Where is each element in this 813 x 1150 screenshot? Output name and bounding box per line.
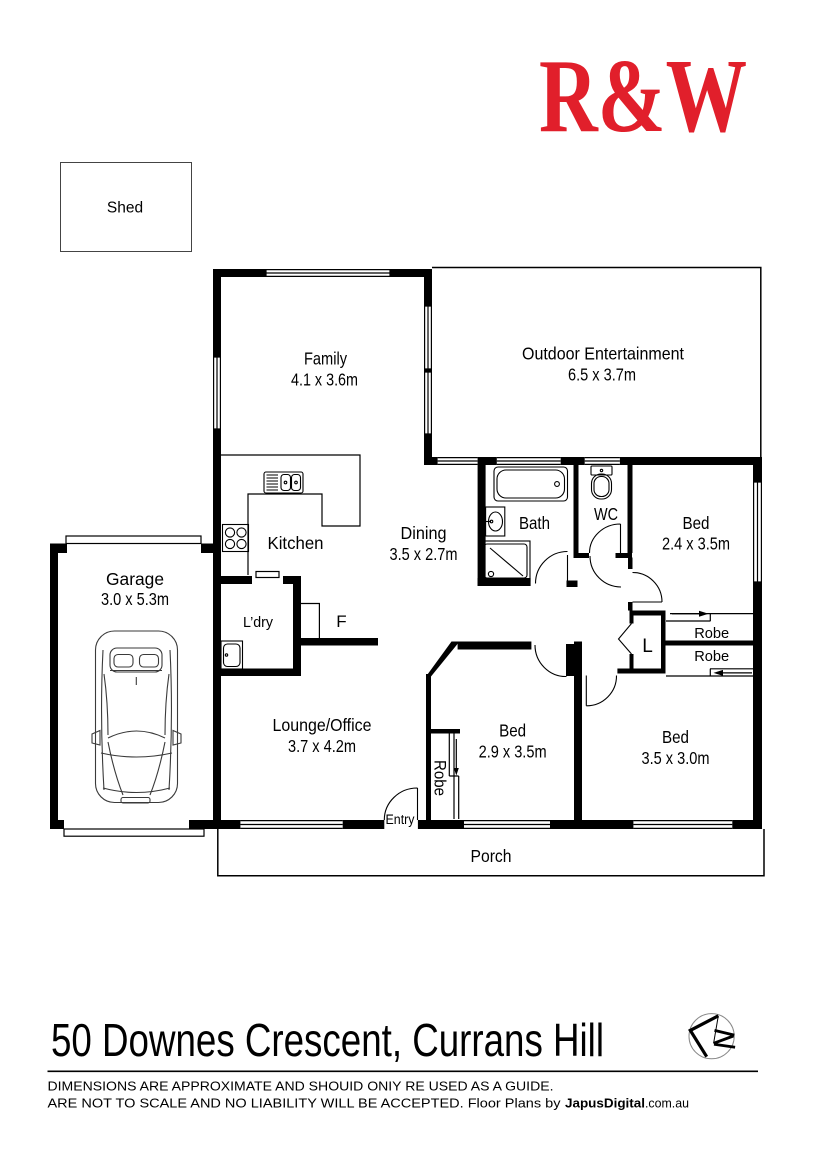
svg-text:DIMENSIONS ARE APPROXIMATE AND: DIMENSIONS ARE APPROXIMATE AND SHOUID ON… [48,1079,554,1094]
svg-text:F: F [336,612,346,631]
svg-text:3.5 x 3.0m: 3.5 x 3.0m [642,748,710,768]
svg-text:3.5 x 2.7m: 3.5 x 2.7m [390,544,458,564]
svg-text:Garage: Garage [106,569,164,589]
svg-text:Lounge/Office: Lounge/Office [273,715,372,735]
svg-text:Shed: Shed [107,200,143,217]
svg-text:L’dry: L’dry [243,614,273,631]
svg-text:Family: Family [304,349,347,369]
svg-text:4.1 x 3.6m: 4.1 x 3.6m [291,370,358,390]
svg-text:Robe: Robe [431,760,449,796]
svg-text:50 Downes Crescent, Currans Hi: 50 Downes Crescent, Currans Hill [51,1014,604,1066]
svg-text:Outdoor Entertainment: Outdoor Entertainment [522,344,684,364]
svg-text:2.9 x 3.5m: 2.9 x 3.5m [479,742,547,762]
svg-text:R&W: R&W [539,37,747,154]
svg-text:Bath: Bath [519,513,550,533]
svg-text:Bed: Bed [683,513,710,533]
svg-text:.com.au: .com.au [645,1095,689,1110]
svg-text:Dining: Dining [401,523,447,543]
svg-text:3.0 x 5.3m: 3.0 x 5.3m [101,589,169,609]
svg-text:Bed: Bed [662,727,689,747]
svg-text:L: L [642,636,653,657]
svg-text:6.5 x 3.7m: 6.5 x 3.7m [568,365,636,385]
svg-text:ARE NOT TO SCALE AND NO LIABIL: ARE NOT TO SCALE AND NO LIABILITY WILL B… [48,1095,565,1110]
svg-text:Porch: Porch [471,846,512,866]
svg-text:Robe: Robe [694,648,729,665]
svg-text:Kitchen: Kitchen [268,533,324,553]
svg-text:Entry: Entry [386,812,415,827]
svg-text:JapusDigital: JapusDigital [565,1095,645,1110]
svg-text:2.4 x 3.5m: 2.4 x 3.5m [662,534,730,554]
svg-text:Robe: Robe [694,625,729,642]
svg-text:WC: WC [594,504,618,524]
svg-text:Bed: Bed [499,721,526,741]
svg-text:3.7 x 4.2m: 3.7 x 4.2m [288,736,356,756]
